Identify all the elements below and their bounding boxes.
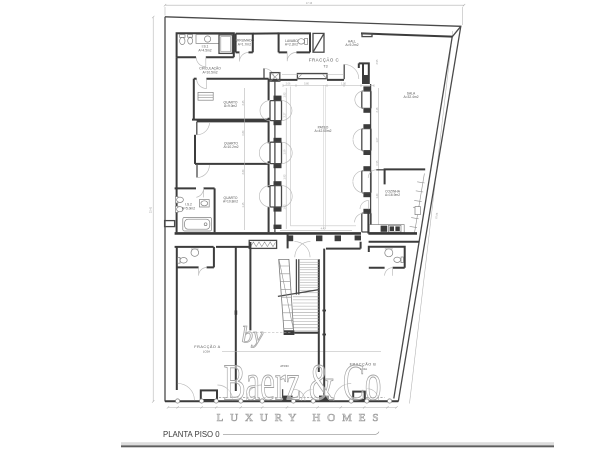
svg-text:PLANTA PISO 0: PLANTA PISO 0 [163, 430, 220, 439]
svg-text:5.80: 5.80 [304, 83, 309, 86]
svg-text:1.40: 1.40 [376, 193, 379, 198]
svg-text:2.06: 2.06 [286, 83, 291, 86]
svg-text:1.03: 1.03 [284, 204, 287, 209]
svg-text:by: by [242, 323, 265, 348]
svg-text:1.07: 1.07 [376, 137, 379, 142]
svg-text:A=9.0m2: A=9.0m2 [224, 104, 237, 108]
svg-text:3.27: 3.27 [284, 112, 287, 117]
svg-text:A=32.4m2: A=32.4m2 [403, 95, 418, 99]
svg-text:1.59: 1.59 [284, 149, 287, 154]
svg-text:A=10.8m2: A=10.8m2 [223, 200, 238, 204]
svg-text:0.95: 0.95 [376, 160, 379, 165]
svg-text:3.30: 3.30 [242, 169, 245, 174]
svg-text:1.93: 1.93 [284, 92, 287, 97]
svg-text:A=5.0m2: A=5.0m2 [182, 206, 195, 210]
svg-text:A=10.5m2: A=10.5m2 [202, 70, 217, 74]
svg-text:A=42.00m2: A=42.00m2 [315, 129, 332, 133]
svg-text:3.95: 3.95 [376, 59, 379, 64]
svg-text:A=9.2m2: A=9.2m2 [345, 43, 358, 47]
svg-text:1.93: 1.93 [284, 174, 287, 179]
svg-text:A=10.2m2: A=10.2m2 [223, 145, 238, 149]
svg-text:A=4.5m2: A=4.5m2 [198, 48, 211, 52]
svg-text:A=2.2m2: A=2.2m2 [285, 43, 298, 47]
svg-text:1.15: 1.15 [242, 202, 245, 207]
svg-text:20.86: 20.86 [435, 212, 439, 219]
svg-text:T3: T3 [323, 65, 327, 69]
svg-text:0.80: 0.80 [242, 130, 245, 135]
svg-text:A=16.9m2: A=16.9m2 [385, 193, 400, 197]
svg-text:Baerz & Co: Baerz & Co [224, 354, 382, 411]
svg-text:3.16: 3.16 [376, 107, 379, 112]
svg-text:23.41: 23.41 [150, 206, 153, 213]
svg-text:17.16: 17.16 [306, 2, 313, 5]
svg-text:4.40: 4.40 [321, 227, 326, 230]
svg-text:LOJA: LOJA [203, 349, 210, 353]
svg-text:FRACÇÃO A: FRACÇÃO A [194, 344, 220, 349]
svg-text:FRACÇÃO C: FRACÇÃO C [309, 58, 339, 63]
svg-text:LUXURY HOMES: LUXURY HOMES [217, 412, 386, 424]
svg-text:A=1.7m2: A=1.7m2 [238, 42, 251, 46]
svg-text:3.45: 3.45 [242, 100, 245, 105]
